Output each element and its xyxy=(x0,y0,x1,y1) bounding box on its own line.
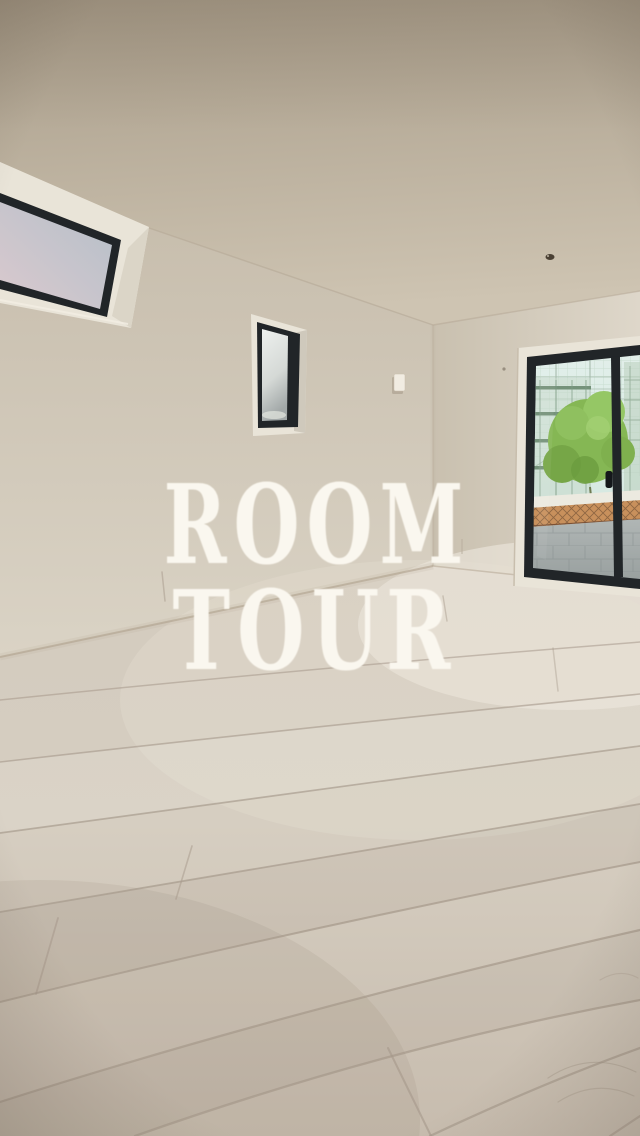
room-photo-canvas: ROOM TOUR xyxy=(0,0,640,1136)
video-frame: ROOM TOUR xyxy=(0,0,640,1136)
title-line-2: TOUR xyxy=(173,566,458,695)
room-tour-title: ROOM TOUR xyxy=(164,460,471,695)
